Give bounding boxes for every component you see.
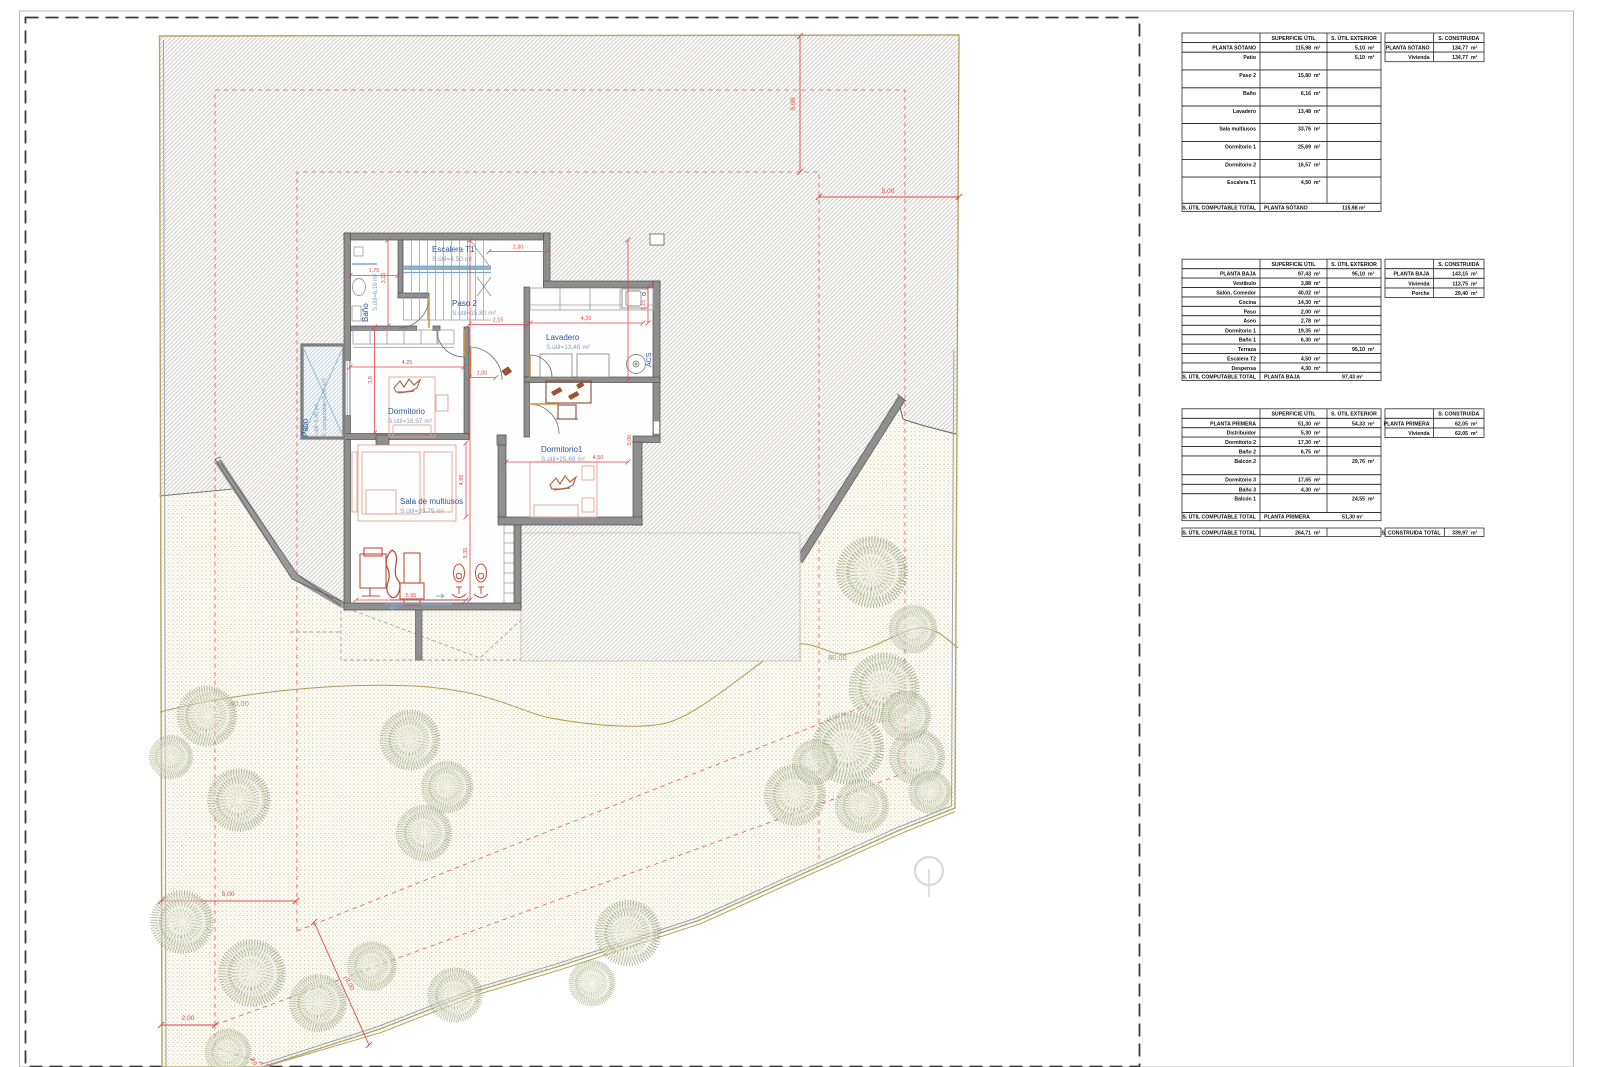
svg-text:134,77: 134,77 [1452,46,1468,52]
svg-text:m²: m² [1314,272,1321,278]
svg-text:24,55: 24,55 [1352,497,1365,503]
svg-text:m²: m² [1471,530,1478,536]
svg-text:95,10: 95,10 [1352,272,1365,278]
svg-text:Baño: Baño [1243,91,1256,97]
svg-text:33,76: 33,76 [1298,127,1311,133]
svg-text:(S. computable=5,00 m²): (S. computable=5,00 m²) [322,378,328,439]
svg-text:Lavadero: Lavadero [1233,109,1256,115]
svg-text:m²: m² [1314,431,1321,437]
svg-text:Dormitorio: Dormitorio [388,407,425,416]
svg-text:Vivienda: Vivienda [1408,431,1429,437]
svg-text:S.útil=4,50 m²: S.útil=4,50 m² [432,256,473,263]
svg-text:16,57: 16,57 [1298,162,1311,168]
svg-text:Escalera T1: Escalera T1 [432,245,475,254]
svg-text:m²: m² [1471,431,1478,437]
svg-text:SUPERFICIE ÚTIL: SUPERFICIE ÚTIL [1271,411,1316,418]
svg-text:95,10: 95,10 [1352,347,1365,353]
svg-text:134,77: 134,77 [1452,55,1468,61]
svg-text:S. CONSTRUIDA: S. CONSTRUIDA [1438,36,1479,42]
svg-text:Balcón 1: Balcón 1 [1234,497,1256,503]
svg-text:m²: m² [1314,309,1321,315]
svg-text:Baño: Baño [361,303,370,322]
svg-text:6,30: 6,30 [1301,338,1311,344]
svg-text:97,43 m²: 97,43 m² [1342,375,1363,381]
svg-text:m²: m² [1368,55,1375,61]
svg-text:25,69: 25,69 [1298,144,1311,150]
svg-text:97,43: 97,43 [1298,272,1311,278]
svg-text:m²: m² [1314,281,1321,287]
svg-text:Dormitorio1: Dormitorio1 [541,445,583,454]
svg-text:80,00: 80,00 [828,653,847,662]
svg-text:40,02: 40,02 [1298,291,1311,297]
svg-text:19,35: 19,35 [1298,328,1311,334]
svg-text:m²: m² [1314,357,1321,363]
svg-text:5,30: 5,30 [1301,431,1311,437]
svg-text:17,65: 17,65 [1298,478,1311,484]
svg-text:5,00: 5,00 [882,188,895,195]
svg-text:m²: m² [1368,497,1375,503]
svg-text:Vivienda: Vivienda [1408,55,1429,61]
svg-text:Dormitorio 2: Dormitorio 2 [1225,162,1256,168]
svg-text:143,15: 143,15 [1452,272,1468,278]
svg-text:S. ÚTIL COMPUTABLE TOTAL: S. ÚTIL COMPUTABLE TOTAL [1182,205,1257,212]
svg-text:m²: m² [1471,291,1478,297]
svg-text:m²: m² [1471,421,1478,427]
svg-text:m²: m² [1314,180,1321,186]
svg-text:m²: m² [1314,478,1321,484]
svg-text:m²: m² [1471,281,1478,287]
svg-text:Despensa: Despensa [1231,366,1256,372]
svg-text:PLANTA SÓTANO: PLANTA SÓTANO [1264,204,1308,212]
svg-text:2,00: 2,00 [1301,309,1311,315]
svg-text:S.útil=5,40 m²: S.útil=5,40 m² [314,404,320,438]
svg-text:62,05: 62,05 [1455,431,1468,437]
svg-text:Sala multiusos: Sala multiusos [1219,127,1256,133]
svg-text:4,30: 4,30 [1301,366,1311,372]
svg-text:S. ÚTIL COMPUTABLE TOTAL: S. ÚTIL COMPUTABLE TOTAL [1182,514,1257,521]
svg-text:3,8: 3,8 [368,376,374,384]
svg-text:62,05: 62,05 [1455,421,1468,427]
svg-text:8,35: 8,35 [463,548,469,559]
svg-text:5,10: 5,10 [1355,55,1365,61]
svg-text:51,30 m²: 51,30 m² [1342,515,1363,521]
svg-text:Paso: Paso [1244,309,1256,315]
svg-text:3,88: 3,88 [1301,281,1311,287]
svg-text:m²: m² [1314,109,1321,115]
svg-text:15,80: 15,80 [1298,73,1311,79]
svg-text:Vivienda: Vivienda [1408,281,1429,287]
svg-text:S. ÚTIL EXTERIOR: S. ÚTIL EXTERIOR [1331,261,1377,268]
svg-text:4,50: 4,50 [593,455,604,461]
svg-text:Salón, Comedor: Salón, Comedor [1216,291,1256,297]
svg-text:m²: m² [1471,46,1478,52]
svg-text:m²: m² [1314,487,1321,493]
svg-text:4,50: 4,50 [1301,357,1311,363]
svg-text:PLANTA BAJA: PLANTA BAJA [1220,272,1256,278]
svg-text:Paso 2: Paso 2 [452,299,477,308]
svg-text:6,16: 6,16 [1301,91,1311,97]
svg-text:SUPERFICIE ÚTIL: SUPERFICIE ÚTIL [1271,35,1316,42]
svg-text:m²: m² [1314,127,1321,133]
svg-text:m²: m² [1314,530,1321,536]
svg-text:m²: m² [1314,440,1321,446]
svg-text:Vestíbulo: Vestíbulo [1233,281,1256,287]
svg-text:Aseo: Aseo [1243,319,1256,325]
svg-text:m²: m² [1471,272,1478,278]
svg-text:Baño 3: Baño 3 [1239,487,1256,493]
svg-text:m²: m² [1368,272,1375,278]
svg-text:Baño 1: Baño 1 [1239,338,1256,344]
svg-text:Escalera T1: Escalera T1 [1227,180,1256,186]
svg-text:4,20: 4,20 [581,316,592,322]
svg-text:4,50: 4,50 [1301,180,1311,186]
svg-text:m²: m² [1314,91,1321,97]
svg-text:Escalera T2: Escalera T2 [1227,357,1256,363]
svg-text:Lavadero: Lavadero [546,333,580,342]
svg-text:S. CONSTRUIDA: S. CONSTRUIDA [1438,412,1479,418]
svg-text:115,98: 115,98 [1295,46,1311,52]
svg-text:S. ÚTIL EXTERIOR: S. ÚTIL EXTERIOR [1331,411,1377,418]
svg-text:m²: m² [1314,46,1321,52]
svg-text:S. CONSTRUIDA TOTAL: S. CONSTRUIDA TOTAL [1382,530,1442,536]
svg-text:Distribuidor: Distribuidor [1227,431,1256,437]
svg-text:5,00: 5,00 [790,97,797,110]
svg-text:m²: m² [1314,300,1321,306]
svg-text:m²: m² [1314,338,1321,344]
svg-text:m²: m² [1314,328,1321,334]
svg-text:m²: m² [1314,450,1321,456]
svg-text:29,76: 29,76 [1352,459,1365,465]
svg-text:m²: m² [1314,366,1321,372]
svg-text:4,95: 4,95 [459,475,465,486]
svg-text:Paso 2: Paso 2 [1239,73,1256,79]
svg-text:PLANTA BAJA: PLANTA BAJA [1264,375,1300,381]
svg-text:S.útil=13,48 m²: S.útil=13,48 m² [546,344,591,351]
svg-text:17,30: 17,30 [1298,440,1311,446]
svg-text:6,75: 6,75 [1301,450,1311,456]
svg-text:51,30: 51,30 [1298,421,1311,427]
svg-text:PLANTA BAJA: PLANTA BAJA [1393,272,1429,278]
svg-text:2,30: 2,30 [513,245,524,251]
svg-text:Dormitorio 2: Dormitorio 2 [1225,440,1256,446]
svg-text:264,71: 264,71 [1295,530,1311,536]
svg-text:PLANTA PRIMERA: PLANTA PRIMERA [1384,421,1430,427]
svg-text:m²: m² [1314,291,1321,297]
svg-text:m²: m² [1368,421,1375,427]
svg-text:5,00: 5,00 [222,891,235,898]
svg-text:m²: m² [1368,459,1375,465]
svg-text:S. ÚTIL EXTERIOR: S. ÚTIL EXTERIOR [1331,35,1377,42]
svg-text:m²: m² [1314,421,1321,427]
svg-text:m²: m² [1471,55,1478,61]
svg-text:2,15: 2,15 [493,318,504,324]
svg-text:m²: m² [1368,46,1375,52]
svg-text:54,33: 54,33 [1352,421,1365,427]
svg-text:S. ÚTIL COMPUTABLE TOTAL: S. ÚTIL COMPUTABLE TOTAL [1182,374,1257,381]
svg-text:m²: m² [1368,347,1375,353]
svg-text:Porche: Porche [1412,291,1430,297]
svg-text:S.útil=15,80 m²: S.útil=15,80 m² [452,310,497,317]
svg-text:Balcón 2: Balcón 2 [1234,459,1256,465]
svg-text:PLANTA PRIMERA: PLANTA PRIMERA [1210,421,1256,427]
svg-text:S. ÚTIL COMPUTABLE TOTAL: S. ÚTIL COMPUTABLE TOTAL [1182,529,1257,536]
svg-text:Baño 2: Baño 2 [1239,450,1256,456]
svg-text:Dormitorio 1: Dormitorio 1 [1225,328,1256,334]
svg-text:Sala de multiusos: Sala de multiusos [400,497,463,506]
svg-text:113,75: 113,75 [1452,281,1468,287]
svg-text:S. CONSTRUIDA: S. CONSTRUIDA [1438,262,1479,268]
svg-text:S.útil=16,57 m²: S.útil=16,57 m² [388,418,433,425]
svg-text:1,00: 1,00 [477,371,488,377]
svg-text:5,95: 5,95 [406,593,417,599]
svg-text:m²: m² [1314,162,1321,168]
svg-text:5,00: 5,00 [627,435,633,446]
svg-text:m²: m² [1314,73,1321,79]
svg-text:3,15: 3,15 [641,300,647,311]
svg-text:S.útil=33,75 m²: S.útil=33,75 m² [400,508,445,515]
svg-text:4,30: 4,30 [1301,487,1311,493]
svg-text:1,75: 1,75 [369,268,380,274]
svg-text:ACS: ACS [646,352,653,367]
svg-text:PLANTA SÓTANO: PLANTA SÓTANO [1386,44,1430,52]
svg-text:Patio: Patio [301,418,310,437]
svg-text:29,40: 29,40 [1455,291,1468,297]
svg-text:Dormitorio 3: Dormitorio 3 [1225,478,1256,484]
svg-text:SUPERFICIE ÚTIL: SUPERFICIE ÚTIL [1271,261,1316,268]
svg-text:PLANTA SÓTANO: PLANTA SÓTANO [1212,44,1256,52]
svg-text:2,78: 2,78 [1301,319,1311,325]
svg-text:m²: m² [1314,144,1321,150]
svg-text:339,97: 339,97 [1452,530,1468,536]
svg-text:m²: m² [1314,319,1321,325]
svg-text:Terraza: Terraza [1238,347,1256,353]
svg-text:Dormitorio 1: Dormitorio 1 [1225,144,1256,150]
svg-text:Patio: Patio [1243,55,1256,61]
svg-text:115,98 m²: 115,98 m² [1342,206,1366,212]
svg-text:14,30: 14,30 [1298,300,1311,306]
svg-text:5,10: 5,10 [1355,46,1365,52]
svg-text:3,15: 3,15 [381,273,387,284]
svg-text:PLANTA PRIMERA: PLANTA PRIMERA [1264,515,1310,521]
svg-text:S.útil=6,16 m²: S.útil=6,16 m² [373,274,379,311]
svg-text:2,00: 2,00 [182,1015,195,1022]
svg-text:13,48: 13,48 [1298,109,1311,115]
svg-text:4,25: 4,25 [402,360,413,366]
svg-text:Cocina: Cocina [1239,300,1256,306]
